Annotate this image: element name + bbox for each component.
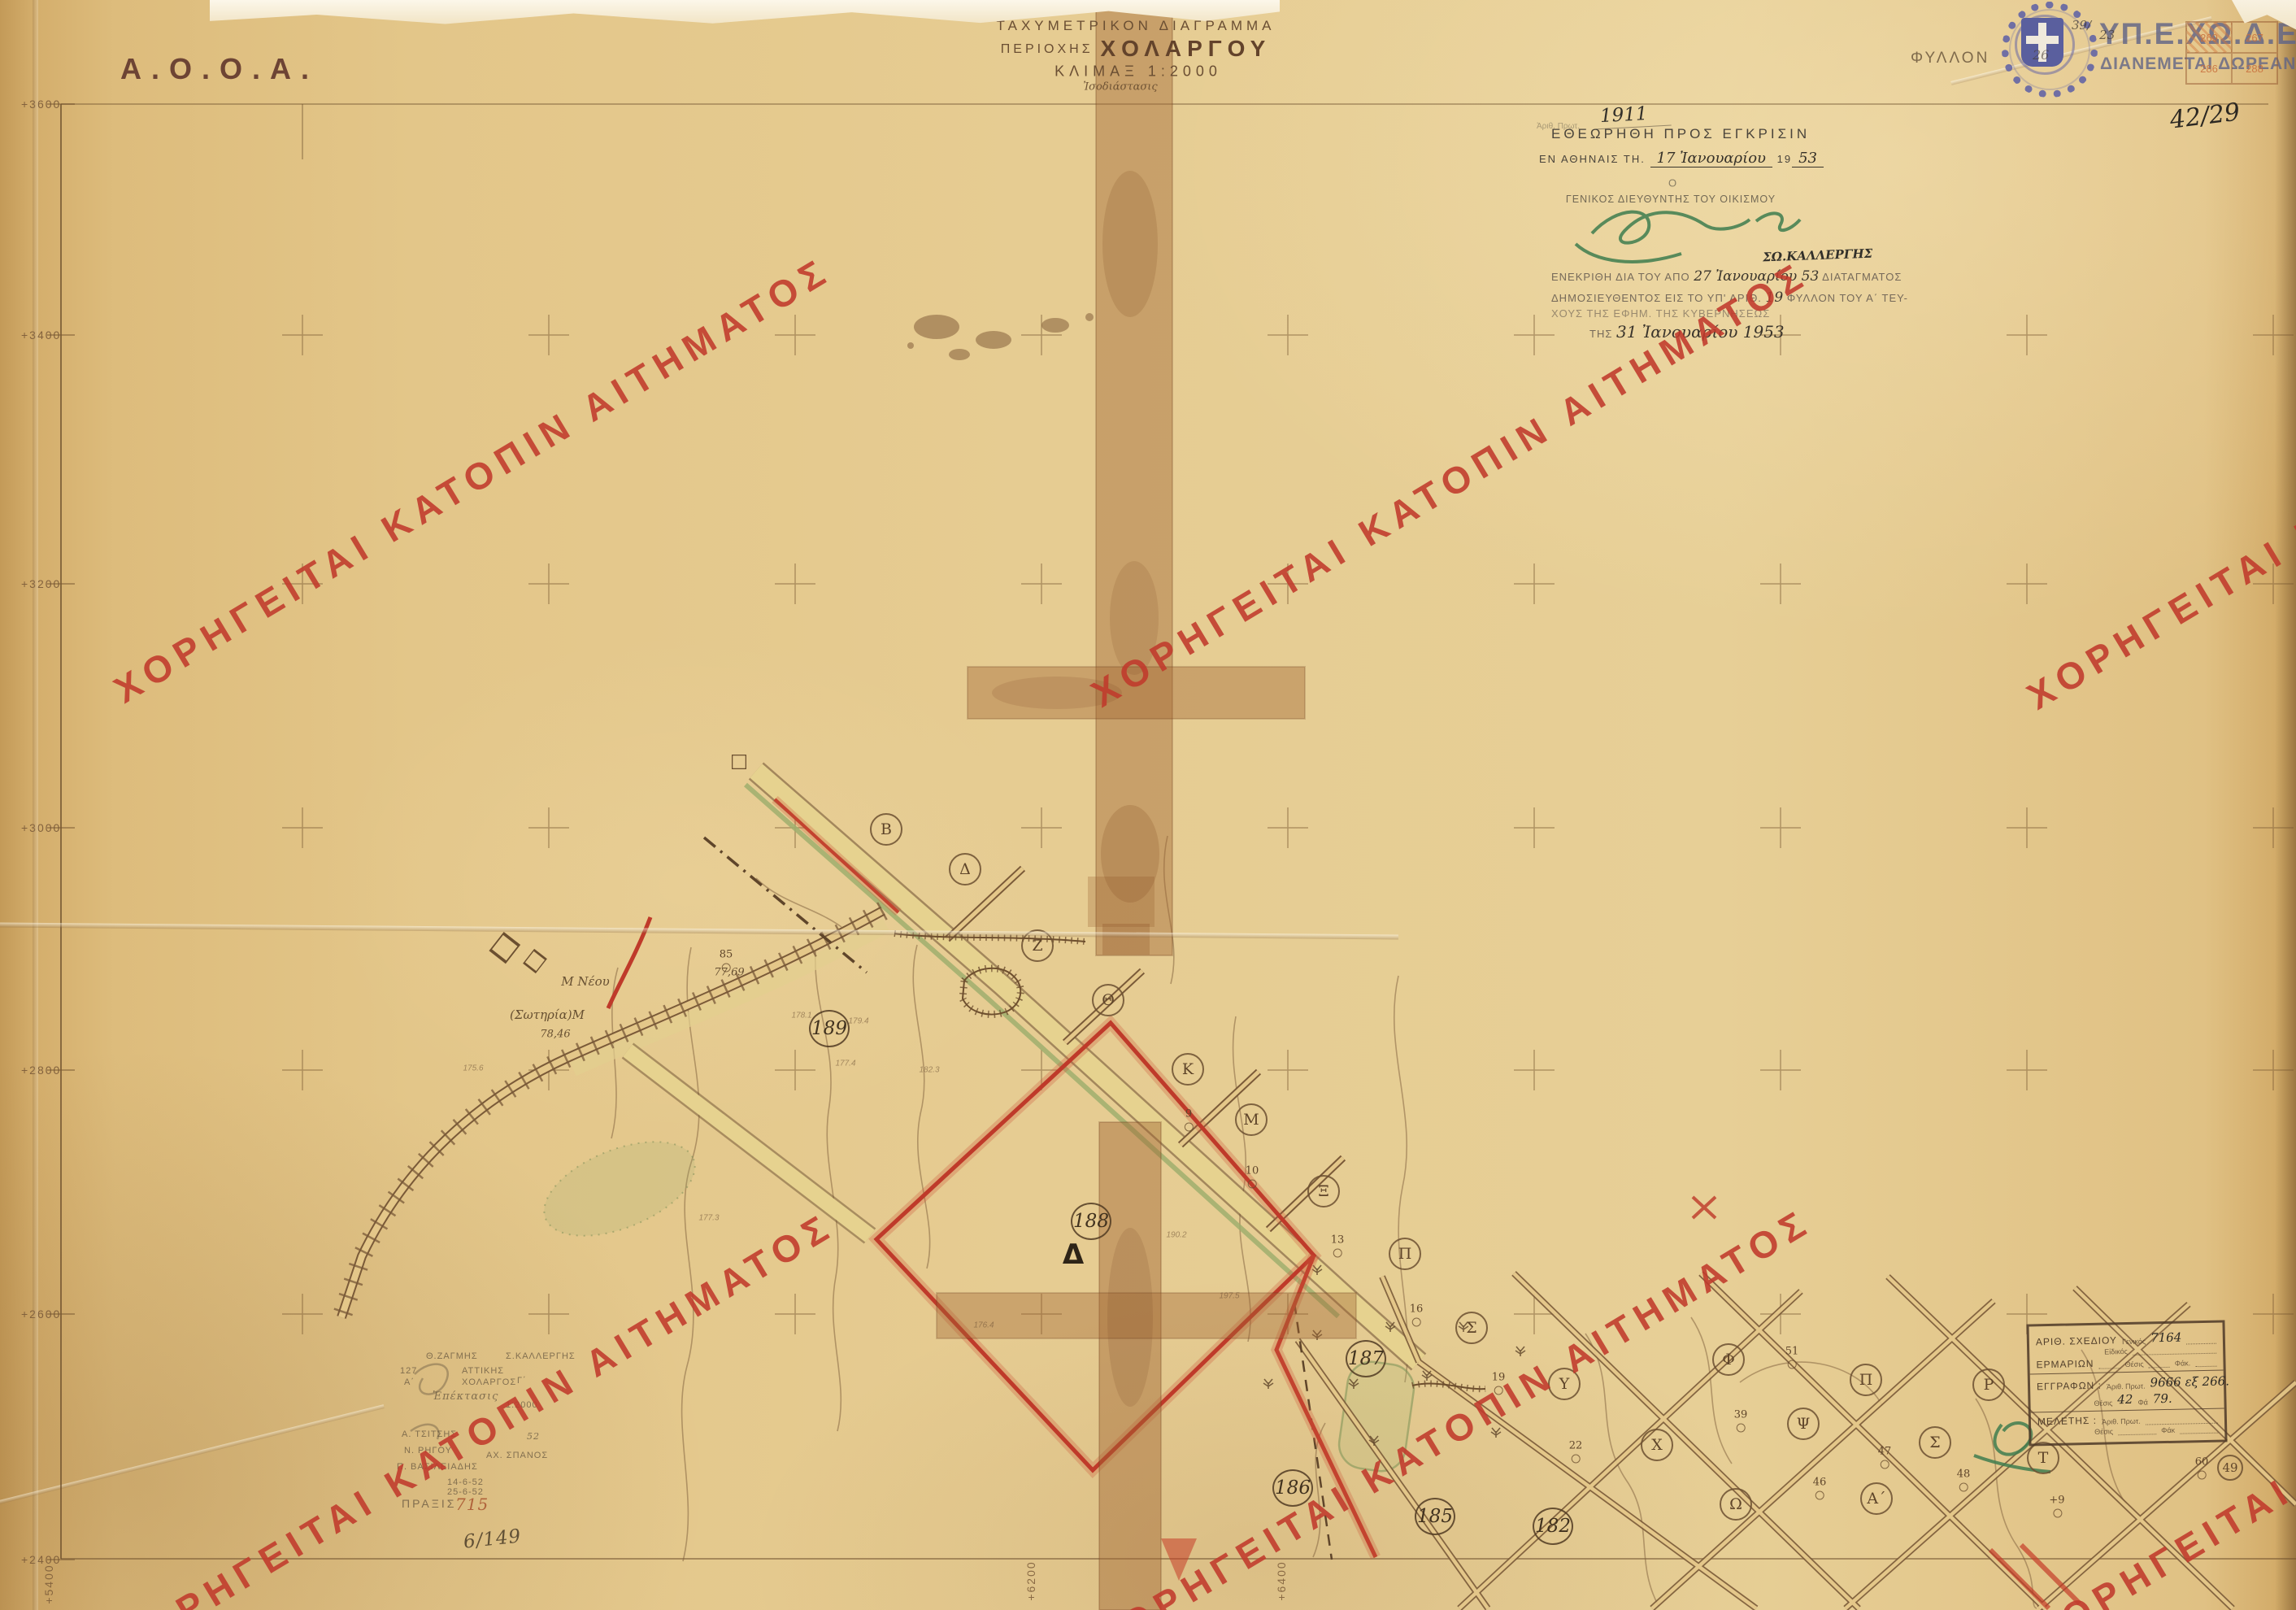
block-letter: Μ — [1235, 1103, 1268, 1136]
block-letter: Χ — [1641, 1429, 1673, 1461]
survey-point-number: 85 — [720, 949, 733, 961]
parcel-number: 185 — [1415, 1498, 1455, 1535]
corner-code: Α.Ο.Ο.Α. — [120, 52, 319, 86]
survey-point-number: 10 — [1246, 1165, 1259, 1177]
folio-label: ΦΥΛΛΟΝ — [1911, 50, 1989, 67]
parcel-number: 188 — [1071, 1203, 1111, 1240]
parcel-number: 182 — [1533, 1508, 1573, 1545]
pencil-note: 26 — [2033, 47, 2049, 63]
pencil-name: Θ.ΖΑΓΜΗΣ — [426, 1351, 478, 1361]
map-annotation-text: 77,69 — [714, 967, 744, 979]
map-title-note: Ἰσοδιάστασις — [1083, 81, 1157, 94]
survey-point-number: 60 — [2195, 1456, 2209, 1469]
block-letter: Σ — [1455, 1312, 1488, 1344]
contour-elevation-label: 197.5 — [1219, 1292, 1239, 1301]
survey-point-number: 22 — [1569, 1440, 1583, 1452]
stamp-line4: ΓΕΝΙΚΟΣ ΔΙΕΥΘΥΝΤΗΣ ΤΟΥ ΟΙΚΙΣΜΟΥ — [1566, 194, 1776, 205]
contour-elevation-label: 182.3 — [919, 1066, 939, 1075]
sheet-index-cell: 286 — [2186, 53, 2232, 84]
green-signature — [1576, 212, 2050, 1472]
sheet-index-box: 269 267 286 288 — [2185, 21, 2278, 85]
survey-point-number: 51 — [1785, 1346, 1799, 1358]
ink-smudges — [907, 313, 1094, 360]
map-sheet: +3600+3400+3200+3000+2800+2600+2400 +540… — [0, 0, 2296, 1610]
pencil-date: 14-6-52 — [447, 1477, 484, 1487]
survey-point-number: +9 — [2049, 1495, 2064, 1507]
contour-elevation-label: 175.6 — [463, 1064, 483, 1073]
block-letter: Ρ — [1972, 1368, 2005, 1401]
table-row-label: ΑΡΙΘ. ΣΧΕΔΙΟΥ — [2036, 1334, 2117, 1347]
map-annotation-text: Μ Νέου — [561, 974, 609, 989]
block-letter: Α΄ — [1860, 1482, 1893, 1515]
block-letter: Δ — [949, 853, 981, 885]
contour-elevation-label: 177.4 — [835, 1060, 855, 1068]
area-name: ΧΟΛΑΡΓΟΥ — [1101, 36, 1272, 61]
pencil-fraction: 39/23 — [2072, 20, 2115, 32]
map-scale: ΚΛΙΜΑΞ 1:2000 — [1055, 63, 1222, 80]
survey-point-number: 47 — [1878, 1446, 1892, 1458]
survey-point-number: 46 — [1813, 1477, 1827, 1489]
praxis-number: 715 — [455, 1495, 489, 1514]
survey-point-number: 39 — [1734, 1409, 1748, 1421]
map-title-line2: ΠΕΡΙΟΧΗΣ ΧΟΛΑΡΓΟΥ — [1001, 36, 1272, 62]
protocol-value: 9666 εξ 266. — [2150, 1373, 2229, 1390]
block-letter: Ξ — [1307, 1175, 1340, 1207]
block-letter: Π — [1850, 1364, 1882, 1396]
parcel-number: 189 — [809, 1010, 850, 1047]
drawing-number-value: 7164 — [2150, 1330, 2182, 1346]
block-letter: Τ — [2027, 1442, 2059, 1474]
sheet-index-cell: 267 — [2232, 22, 2277, 53]
block-letter: Κ — [1172, 1053, 1204, 1086]
survey-point-number: 9 — [1185, 1108, 1192, 1120]
block-letter: Ψ — [1787, 1408, 1820, 1440]
contour-elevation-label: 176.4 — [973, 1321, 994, 1330]
stamp-line1: ΕΘΕΩΡΗΘΗ ΠΡΟΣ ΕΓΚΡΙΣΙΝ — [1551, 126, 1810, 142]
block-letter: Θ — [1092, 984, 1124, 1016]
map-linework — [0, 0, 2296, 1610]
block-letter: Σ — [1919, 1426, 1951, 1459]
map-title-line1: ΤΑΧΥΜΕΤΡΙΚΟΝ ΔΙΑΓΡΑΜΜΑ — [996, 18, 1275, 34]
circled-point-number: 49 — [2217, 1455, 2243, 1481]
survey-point-number: 13 — [1331, 1234, 1345, 1247]
surveyor-name: ΑΧ. ΣΠΑΝΟΣ — [486, 1451, 548, 1460]
block-letter: Ω — [1720, 1488, 1752, 1521]
block-letter: Φ — [1712, 1343, 1745, 1376]
map-annotation-text: 78,46 — [540, 1029, 570, 1041]
stamp-handwritten-date: 17 Ἰανουαρίου — [1650, 150, 1772, 168]
map-frame — [61, 104, 2296, 1559]
decree-line1: ΕΝΕΚΡΙΘΗ ΔΙΑ ΤΟΥ ΑΠΟ 27 Ἰανουαρίου 53 ΔΙ… — [1551, 268, 1902, 285]
parcel-number: 187 — [1346, 1340, 1386, 1377]
map-annotation-text: (Σωτηρία)Μ — [510, 1007, 585, 1022]
drawing-number-table: ΑΡΙΘ. ΣΧΕΔΙΟΥ Γενικός 7164 Εἰδικός ΕΡΜΑΡ… — [2026, 1320, 2227, 1446]
block-letter: Π — [1389, 1238, 1421, 1270]
block-letter: Β — [870, 813, 902, 846]
triangle-mark: Δ — [1063, 1238, 1084, 1271]
stamp-line2: ΕΝ ΑΘΗΝΑΙΣ ΤΗ. 17 Ἰανουαρίου 1953 — [1539, 150, 1824, 167]
stamp-line3: Ο — [1668, 177, 1676, 189]
contour-elevation-label: 190.2 — [1166, 1231, 1186, 1240]
contour-elevation-label: 177.3 — [698, 1214, 719, 1223]
sheet-index-cell: 288 — [2232, 53, 2277, 84]
survey-point-number: 16 — [1410, 1303, 1424, 1316]
sheet-index-cell: 269 — [2186, 22, 2232, 53]
contour-elevation-label: 178.1 — [791, 1012, 811, 1020]
survey-point-number: 48 — [1957, 1469, 1971, 1481]
contour-elevation-label: 179.4 — [848, 1017, 868, 1026]
building-symbols — [490, 755, 746, 973]
